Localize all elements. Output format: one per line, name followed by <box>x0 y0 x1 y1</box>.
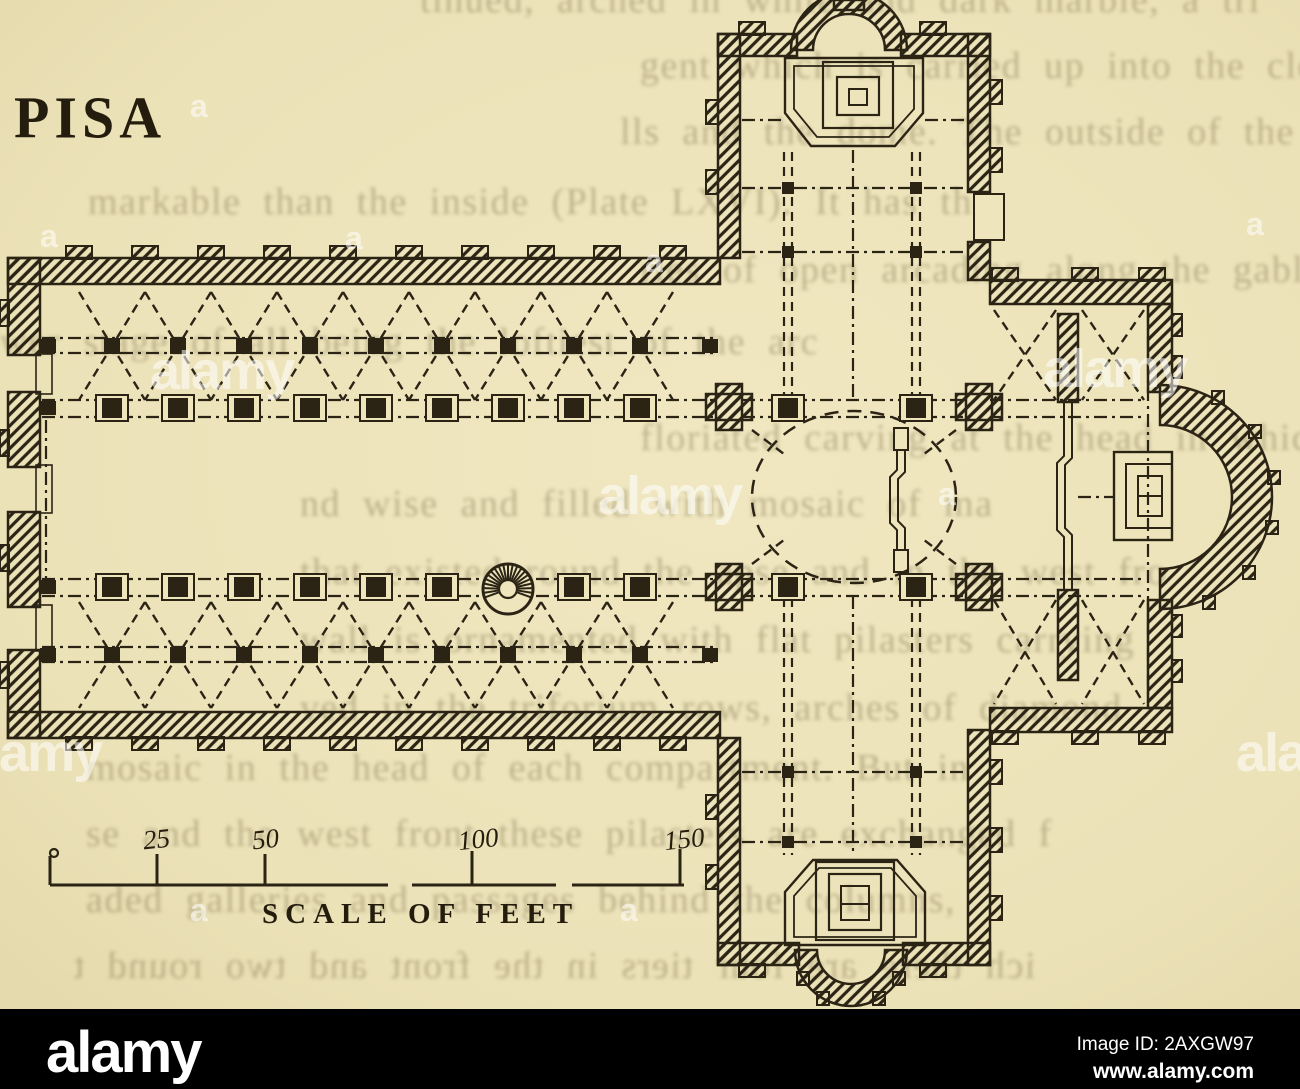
pisa-cathedral-floor-plan <box>0 0 1300 1009</box>
scale-tick-label: 50 <box>250 823 280 857</box>
alamy-footer-bar: alamy Image ID: 2AXGW97 www.alamy.com <box>0 1009 1300 1089</box>
pilaster-bumps <box>0 22 1280 1005</box>
image-id-label: Image ID: 2AXGW97 <box>1077 1034 1254 1056</box>
scale-tick-label: 25 <box>141 823 171 857</box>
stock-photo-page: tinued, arched in white and dark marble,… <box>0 0 1300 1089</box>
plan-title: PISA <box>14 83 166 151</box>
wall-hatching <box>8 0 1272 1006</box>
pulpit-circle <box>483 564 533 614</box>
scale-tick-label: 100 <box>456 822 500 857</box>
alamy-logo: alamy <box>46 1019 200 1086</box>
scanned-book-page: tinued, arched in white and dark marble,… <box>0 0 1300 1009</box>
scale-tick-label: 150 <box>662 822 706 857</box>
scale-bar-label: SCALE OF FEET <box>262 898 579 931</box>
alamy-website-url: www.alamy.com <box>1093 1060 1254 1084</box>
plan-linework <box>36 58 1172 945</box>
